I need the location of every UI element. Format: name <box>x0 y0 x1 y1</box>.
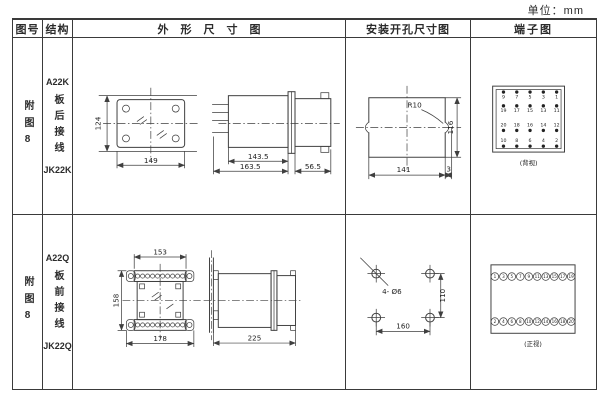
view-caption-front: (正视) <box>524 339 542 348</box>
side-view: 143.5 163.5 56.5 <box>212 92 339 175</box>
terminal-diagram-jk22q: 135791113151719 2468101214161820 (正视) <box>471 215 596 389</box>
cell-mounting-row1: R10 141 116 3 <box>346 38 471 215</box>
svg-text:9: 9 <box>528 274 531 279</box>
dim-front-height: 124 <box>94 116 103 130</box>
svg-text:5: 5 <box>510 274 513 279</box>
svg-text:18: 18 <box>514 122 520 128</box>
cell-structure-row2: A22Q 板前接线 JK22Q <box>43 215 73 389</box>
svg-text:10: 10 <box>500 138 506 144</box>
svg-text:3: 3 <box>542 94 545 100</box>
mounting-hole-drawing-jk22q: 4- Ø6 110 160 <box>346 215 470 389</box>
figure-no-row2: 附图8 <box>20 276 35 328</box>
terminal-numbers: 97531 1917151311 2018161412 108642 <box>500 94 559 144</box>
dim-front-height: 158 <box>112 293 121 307</box>
dim-rear-depth: 56.5 <box>305 162 321 171</box>
header-figure-no: 图号 <box>13 20 43 38</box>
svg-text:16: 16 <box>552 319 558 324</box>
dim-hole-spacing-h: 160 <box>396 321 410 330</box>
wiring-rear-label: 板后接线 <box>50 94 65 158</box>
mounting-holes <box>367 265 438 327</box>
cell-terminal-row2: 135791113151719 2468101214161820 (正视) <box>471 215 596 389</box>
header-structure: 结构 <box>43 20 73 38</box>
svg-text:7: 7 <box>515 94 518 100</box>
model-jk22q: JK22Q <box>43 341 72 351</box>
svg-text:20: 20 <box>500 122 506 128</box>
svg-text:14: 14 <box>540 122 546 128</box>
svg-text:2: 2 <box>494 319 497 324</box>
svg-text:19: 19 <box>569 274 575 279</box>
svg-text:20: 20 <box>569 319 575 324</box>
svg-text:15: 15 <box>552 274 558 279</box>
dim-top-width: 153 <box>153 248 167 257</box>
front-view: 153 158 178 <box>112 248 201 347</box>
wiring-front-label: 板前接线 <box>50 270 65 334</box>
header-mounting-dims: 安装开孔尺寸图 <box>346 20 471 38</box>
dim-case-depth: 143.5 <box>248 152 269 161</box>
cell-mounting-row2: 4- Ø6 110 160 <box>346 215 471 389</box>
dim-depth: 225 <box>248 334 262 343</box>
svg-text:12: 12 <box>554 122 560 128</box>
svg-text:7: 7 <box>519 274 522 279</box>
label-hole-spec: 4- Ø6 <box>382 287 402 296</box>
cell-structure-row1: A22K 板后接线 JK22K <box>43 38 73 215</box>
dim-hole-spacing-v: 110 <box>438 288 447 302</box>
outline-drawing-jk22q: 153 158 178 <box>73 215 345 389</box>
terminal-diagram-jk22k: 97531 1917151311 2018161412 108642 (背视) <box>471 38 596 214</box>
svg-text:12: 12 <box>535 319 541 324</box>
svg-text:17: 17 <box>560 274 566 279</box>
svg-text:15: 15 <box>527 108 533 114</box>
cell-outline-row1: 124 149 143.5 <box>73 38 346 215</box>
model-jk22k: JK22K <box>43 165 71 175</box>
svg-text:1: 1 <box>494 274 497 279</box>
header-terminal-diagram: 端子图 <box>471 20 596 38</box>
svg-text:17: 17 <box>514 108 520 114</box>
svg-text:6: 6 <box>510 319 513 324</box>
svg-text:10: 10 <box>526 319 532 324</box>
svg-text:1: 1 <box>555 94 558 100</box>
mounting-hole-drawing-jk22k: R10 141 116 3 <box>346 38 470 214</box>
svg-text:8: 8 <box>515 138 518 144</box>
cell-figure-row1: 附图8 <box>13 38 43 215</box>
svg-text:2: 2 <box>555 138 558 144</box>
svg-text:6: 6 <box>529 138 532 144</box>
dim-cutout-height: 116 <box>446 120 455 134</box>
dim-total-depth: 163.5 <box>240 162 261 171</box>
cell-outline-row2: 153 158 178 <box>73 215 346 389</box>
dimensions-table: 图号 结构 外形尺寸图 安装开孔尺寸图 端子图 附图8 A22K 板后接线 JK… <box>12 18 597 390</box>
header-outline-dims: 外形尺寸图 <box>73 20 346 38</box>
dim-cutout-offset: 3 <box>446 165 451 174</box>
outline-drawing-jk22k: 124 149 143.5 <box>73 38 345 214</box>
svg-text:3: 3 <box>502 274 505 279</box>
svg-text:18: 18 <box>560 319 566 324</box>
model-a22q: A22Q <box>46 253 70 263</box>
svg-text:9: 9 <box>502 94 505 100</box>
svg-text:5: 5 <box>529 94 532 100</box>
unit-label: 单位：mm <box>528 2 584 18</box>
dim-bottom-width: 178 <box>153 334 167 343</box>
terminal-screws <box>491 273 575 326</box>
view-caption-rear: (背视) <box>520 158 538 167</box>
svg-text:16: 16 <box>527 122 533 128</box>
dim-cutout-width: 141 <box>397 165 411 174</box>
label-cutout-radius: R10 <box>408 101 423 110</box>
cell-terminal-row1: 97531 1917151311 2018161412 108642 (背视) <box>471 38 596 215</box>
dim-front-width: 149 <box>144 156 158 165</box>
cell-figure-row2: 附图8 <box>13 215 43 389</box>
svg-text:4: 4 <box>542 138 545 144</box>
svg-text:4: 4 <box>502 319 505 324</box>
datasheet-page: 单位：mm 图号 结构 外形尺寸图 安装开孔尺寸图 端子图 附图8 A22K 板… <box>0 0 600 400</box>
front-view: 124 149 <box>94 88 199 169</box>
svg-text:13: 13 <box>540 108 546 114</box>
svg-text:14: 14 <box>543 319 549 324</box>
svg-text:19: 19 <box>500 108 506 114</box>
terminal-numbers: 135791113151719 2468101214161820 <box>494 274 575 324</box>
figure-no-row1: 附图8 <box>20 100 35 152</box>
model-a22k: A22K <box>46 77 69 87</box>
svg-text:13: 13 <box>543 274 549 279</box>
side-view: 225 <box>204 250 303 346</box>
svg-text:8: 8 <box>519 319 522 324</box>
svg-text:11: 11 <box>535 274 541 279</box>
svg-text:11: 11 <box>554 108 560 114</box>
